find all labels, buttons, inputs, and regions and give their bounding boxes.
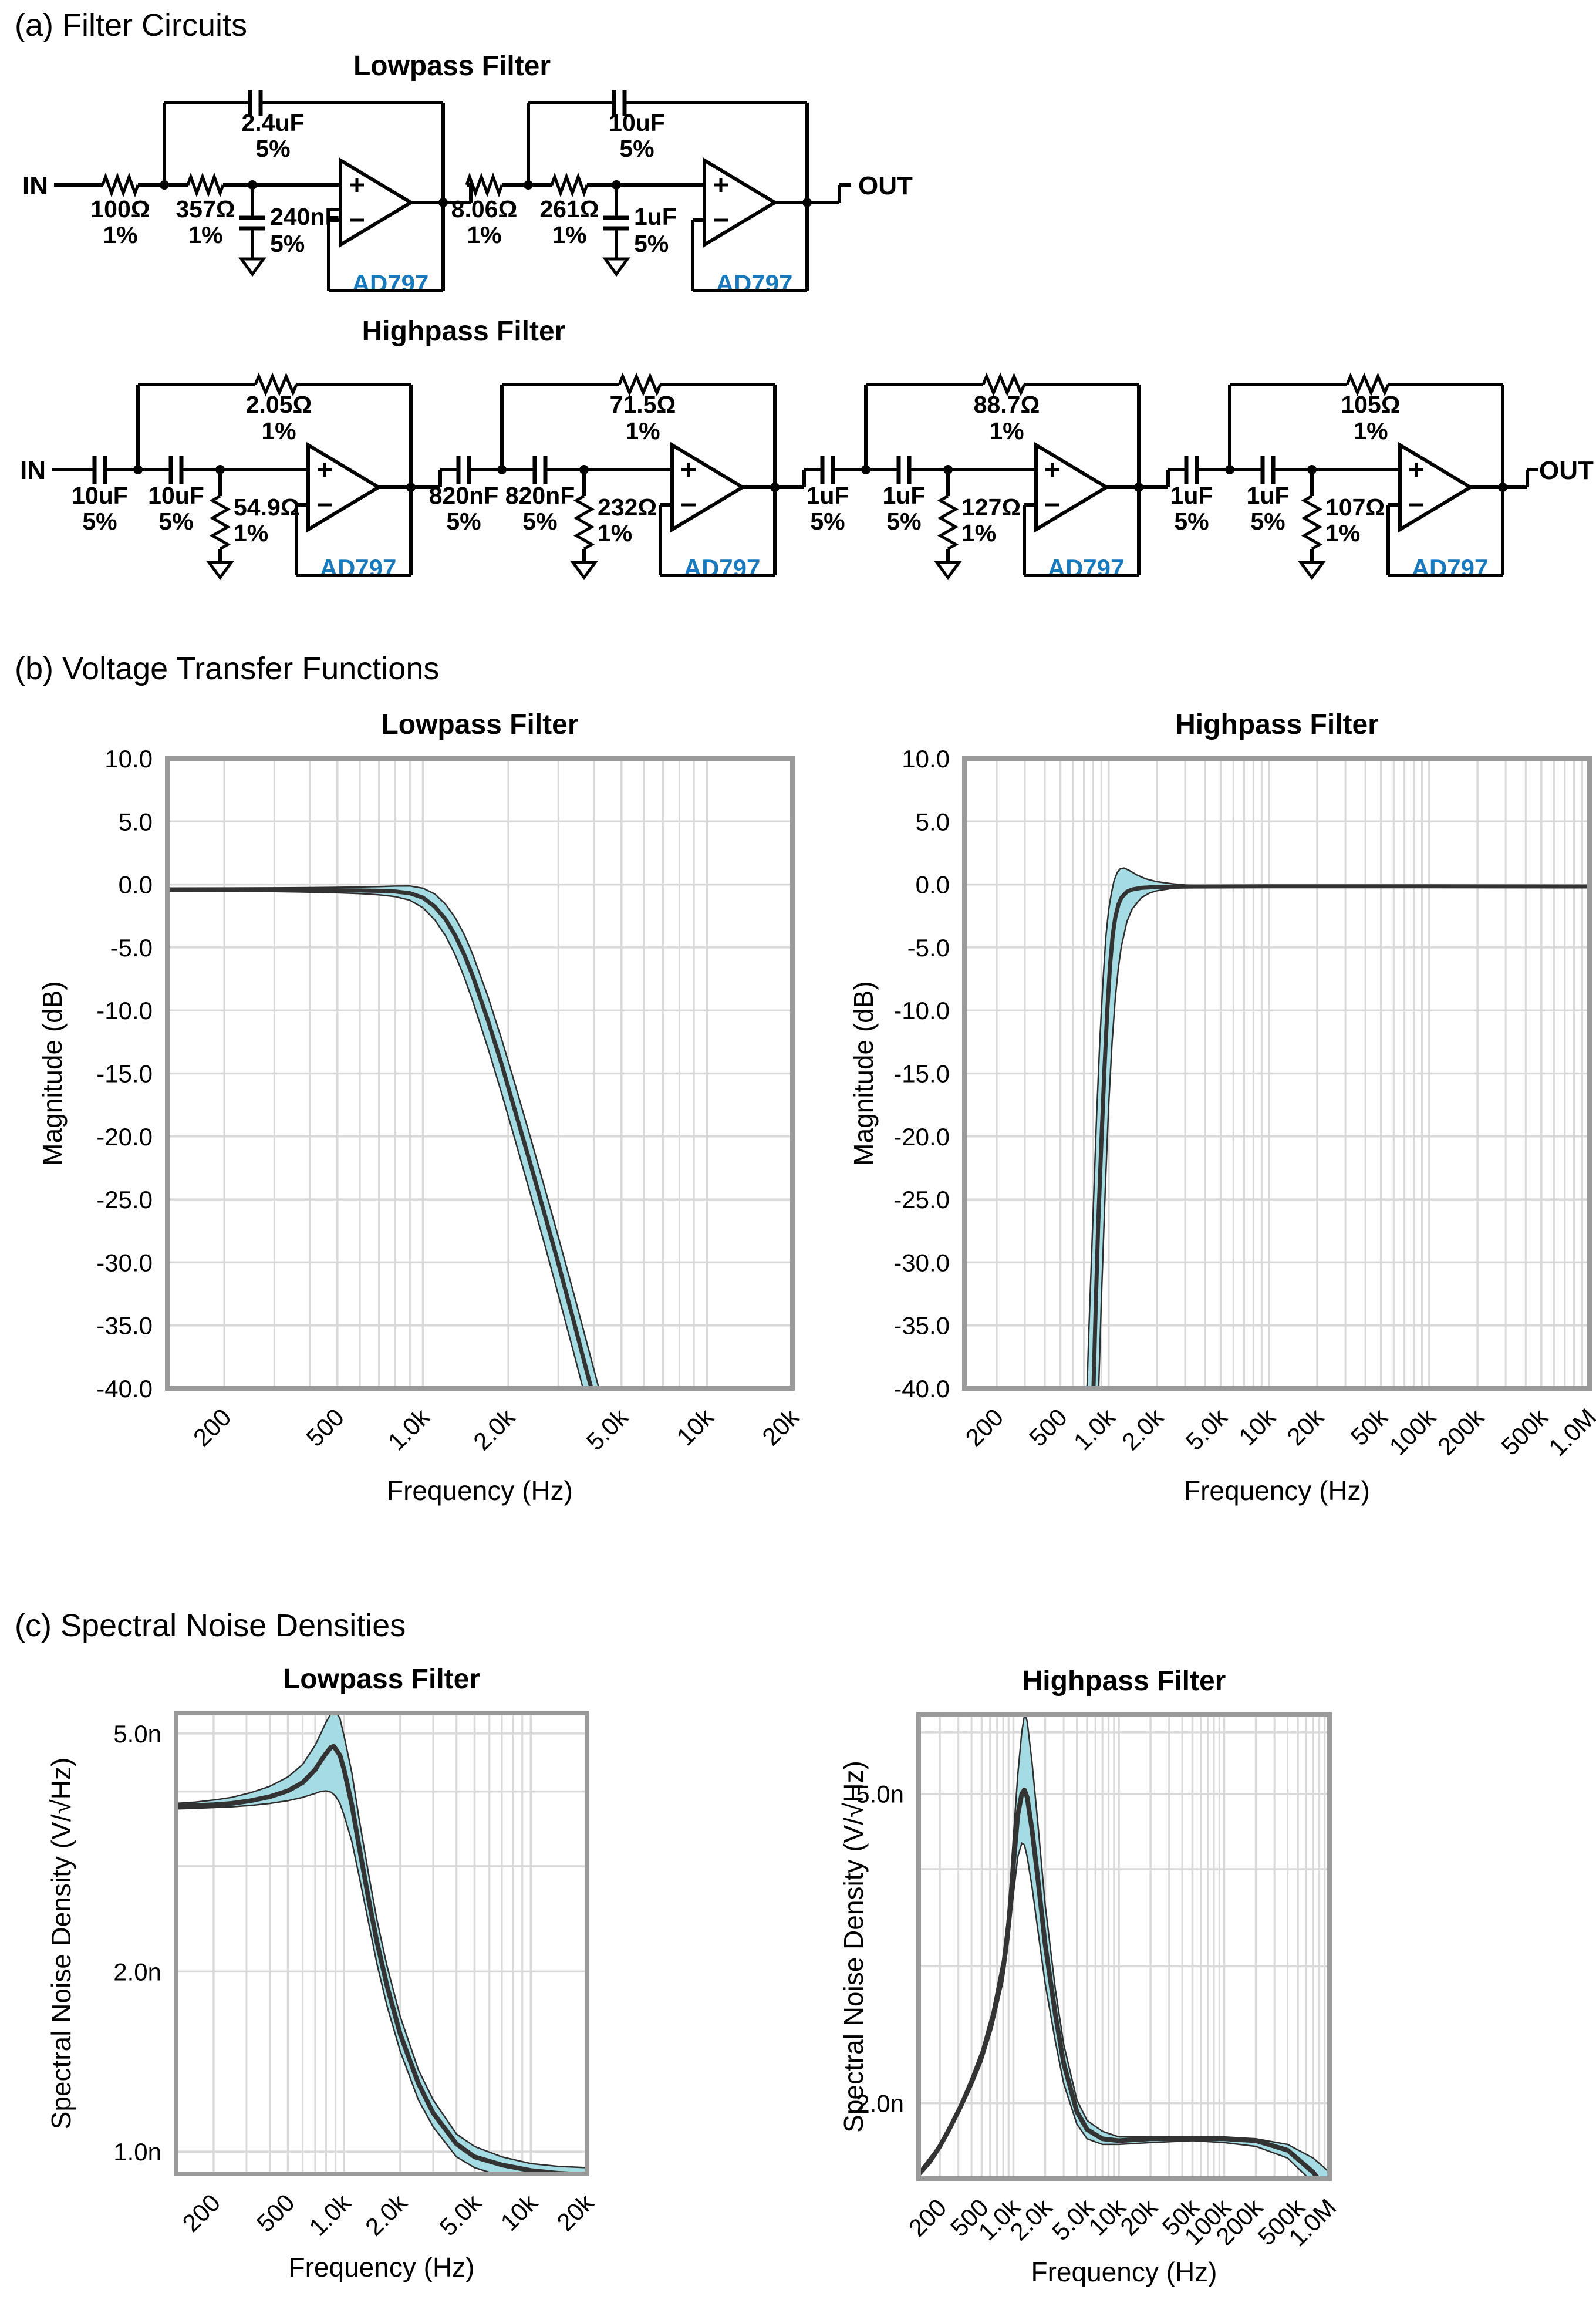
out-label: OUT <box>1539 456 1594 485</box>
component-value: 10uF <box>609 109 665 136</box>
x-tick-label: 1.0k <box>303 2188 356 2241</box>
gridlines <box>167 758 792 1388</box>
chart-title: Highpass Filter <box>1023 1665 1226 1697</box>
opamp-label: AD797 <box>684 554 761 582</box>
y-tick-label: -30.0 <box>96 1249 153 1276</box>
ground-icon <box>573 562 595 578</box>
component-tolerance: 5% <box>270 230 305 257</box>
highpass-circuit-title: Highpass Filter <box>362 316 566 347</box>
component-tolerance: 1% <box>989 417 1024 444</box>
component-value: 54.9Ω <box>234 494 300 521</box>
component-tolerance: 1% <box>261 417 296 444</box>
lowpass-stage: AD7978.06Ω1%261Ω1%1uF5%10uF5% <box>451 90 828 297</box>
ground-icon <box>209 562 231 578</box>
opamp-label: AD797 <box>1048 554 1125 582</box>
series-area <box>919 1713 1330 2214</box>
y-tick-label: -25.0 <box>96 1186 153 1213</box>
highpass-stage: AD79710uF5%10uF5%54.9Ω1%2.05Ω1% <box>72 376 428 582</box>
component-value: 2.4uF <box>241 109 304 136</box>
section-b-header: (b) Voltage Transfer Functions <box>15 650 439 687</box>
x-axis-label: Frequency (Hz) <box>1184 1475 1370 1506</box>
x-tick-label: 500 <box>301 1403 349 1452</box>
ground-icon <box>605 259 627 274</box>
y-axis-label: Magnitude (dB) <box>848 981 879 1166</box>
component-tolerance: 5% <box>446 508 481 535</box>
y-tick-label: -10.0 <box>893 997 950 1024</box>
component-tolerance: 5% <box>1174 508 1209 535</box>
y-tick-label: -20.0 <box>96 1123 153 1151</box>
series-area <box>167 886 600 1420</box>
y-tick-label: -35.0 <box>893 1312 950 1340</box>
opamp-label: AD797 <box>352 269 429 297</box>
y-tick-label: 0.0 <box>119 871 153 899</box>
out-label: OUT <box>858 171 913 200</box>
highpass-stage: AD7971uF5%1uF5%107Ω1%105Ω1% <box>1170 376 1520 582</box>
component-value: 10uF <box>148 482 204 509</box>
tolerance-band <box>167 886 600 1406</box>
y-tick-label: 5.0n <box>113 1720 161 1748</box>
component-tolerance: 1% <box>467 221 501 248</box>
y-tick-label: -40.0 <box>893 1375 950 1402</box>
component-tolerance: 1% <box>961 520 996 547</box>
gridlines <box>964 758 1590 1388</box>
x-tick-label: 5.0k <box>581 1402 634 1455</box>
y-axis-label: Spectral Noise Density (V/√Hz) <box>46 1758 76 2130</box>
x-tick-label: 200 <box>960 1403 1008 1452</box>
resistor-icon <box>212 496 228 549</box>
y-tick-label: -15.0 <box>893 1060 950 1088</box>
opamp-label: AD797 <box>716 269 793 297</box>
x-axis-label: Frequency (Hz) <box>1031 2257 1217 2287</box>
lowpass-circuit-title: Lowpass Filter <box>353 50 551 82</box>
nominal-curve <box>919 1790 1330 2194</box>
component-tolerance: 5% <box>634 230 669 257</box>
lp-noise-chart: 5.0n2.0n1.0n2005001.0k2.0k5.0k10k20kLowp… <box>0 1638 857 2303</box>
opamp-icon <box>672 445 743 530</box>
x-tick-label: 2.0k <box>1116 1402 1169 1455</box>
resistor-icon <box>983 376 1024 393</box>
opamp-label: AD797 <box>1412 554 1489 582</box>
chart-title: Highpass Filter <box>1175 709 1379 740</box>
x-axis-label: Frequency (Hz) <box>289 2252 475 2282</box>
gridlines <box>919 1715 1330 2179</box>
resistor-icon <box>576 496 592 549</box>
resistor-icon <box>1304 496 1320 549</box>
opamp-icon <box>308 445 379 530</box>
y-tick-label: -5.0 <box>110 934 153 962</box>
component-value: 71.5Ω <box>610 391 676 418</box>
y-tick-label: 5.0 <box>916 808 950 835</box>
component-value: 10uF <box>72 482 128 509</box>
x-tick-label: 200 <box>177 2189 226 2237</box>
circuits-canvas: Lowpass FilterINAD797100Ω1%357Ω1%240nF5%… <box>0 0 1596 622</box>
y-tick-label: 10.0 <box>902 745 950 773</box>
y-tick-label: 0.0 <box>916 871 950 899</box>
component-value: 107Ω <box>1325 494 1385 521</box>
component-value: 127Ω <box>961 494 1021 521</box>
ground-icon <box>937 562 959 578</box>
resistor-icon <box>619 376 660 393</box>
y-tick-label: 5.0 <box>119 808 153 835</box>
x-tick-label: 5.0k <box>434 2188 487 2241</box>
y-tick-label: -10.0 <box>96 997 153 1024</box>
x-tick-label: 200 <box>188 1403 237 1452</box>
opamp-icon <box>1036 445 1106 530</box>
in-label: IN <box>22 171 48 200</box>
component-tolerance: 5% <box>886 508 921 535</box>
component-value: 105Ω <box>1341 391 1400 418</box>
y-tick-label: -20.0 <box>893 1123 950 1151</box>
x-tick-label: 100k <box>1384 1402 1442 1460</box>
component-tolerance: 1% <box>625 417 660 444</box>
y-tick-label: -30.0 <box>893 1249 950 1276</box>
x-tick-label: 2.0k <box>468 1402 521 1455</box>
y-tick-label: 1.0n <box>113 2138 161 2166</box>
x-tick-label: 10k <box>672 1402 720 1451</box>
x-tick-label: 20k <box>1115 2193 1163 2241</box>
tolerance-band <box>176 1711 587 2185</box>
opamp-icon <box>340 160 411 245</box>
x-tick-label: 1.0M <box>1543 1403 1596 1461</box>
component-value: 1uF <box>1170 482 1213 509</box>
component-value: 820nF <box>505 482 575 509</box>
component-value: 232Ω <box>598 494 657 521</box>
highpass-stage: AD7971uF5%1uF5%127Ω1%88.7Ω1% <box>807 376 1156 582</box>
highpass-stage: AD797820nF5%820nF5%232Ω1%71.5Ω1% <box>429 376 792 582</box>
y-tick-label: -25.0 <box>893 1186 950 1213</box>
y-axis-label: Spectral Noise Density (V/√Hz) <box>838 1761 869 2133</box>
x-tick-label: 1.0k <box>382 1402 435 1455</box>
chart-title: Lowpass Filter <box>283 1664 480 1695</box>
ground-icon <box>241 259 264 274</box>
resistor-icon <box>103 177 138 193</box>
x-tick-label: 5.0k <box>1180 1402 1233 1455</box>
component-tolerance: 5% <box>82 508 117 535</box>
component-tolerance: 1% <box>1353 417 1388 444</box>
component-tolerance: 5% <box>522 508 557 535</box>
x-tick-label: 10k <box>495 2188 544 2236</box>
x-tick-label: 200 <box>903 2193 952 2242</box>
component-value: 88.7Ω <box>974 391 1040 418</box>
component-value: 100Ω <box>90 195 150 222</box>
y-tick-label: 2.0n <box>113 1958 161 1985</box>
y-tick-label: -40.0 <box>96 1375 153 1402</box>
component-tolerance: 1% <box>552 221 586 248</box>
component-tolerance: 5% <box>1250 508 1285 535</box>
component-value: 357Ω <box>176 195 235 222</box>
component-value: 240nF <box>270 203 340 230</box>
x-tick-label: 10k <box>1233 1402 1281 1451</box>
nominal-curve <box>176 1746 587 2175</box>
opamp-icon <box>704 160 775 245</box>
chart-title: Lowpass Filter <box>381 709 578 740</box>
resistor-icon <box>188 177 223 193</box>
y-tick-label: 10.0 <box>104 745 153 773</box>
in-label: IN <box>20 456 46 485</box>
component-tolerance: 1% <box>1325 520 1360 547</box>
y-tick-label: -15.0 <box>96 1060 153 1088</box>
ground-icon <box>1301 562 1323 578</box>
x-tick-label: 500 <box>1024 1403 1072 1452</box>
component-value: 1uF <box>883 482 926 509</box>
component-tolerance: 1% <box>598 520 632 547</box>
component-value: 1uF <box>1247 482 1290 509</box>
component-tolerance: 5% <box>255 135 290 162</box>
component-value: 1uF <box>807 482 849 509</box>
x-tick-label: 20k <box>551 2188 599 2236</box>
x-tick-label: 200k <box>1432 1402 1490 1460</box>
resistor-icon <box>940 496 956 549</box>
y-tick-label: -5.0 <box>907 934 950 962</box>
x-tick-label: 500k <box>1496 1402 1554 1460</box>
component-value: 261Ω <box>539 195 599 222</box>
lowpass-stage: AD797100Ω1%357Ω1%240nF5%2.4uF5% <box>90 90 464 297</box>
x-tick-label: 500 <box>251 2189 300 2237</box>
component-tolerance: 5% <box>158 508 193 535</box>
y-axis-label: Magnitude (dB) <box>37 981 68 1166</box>
x-tick-label: 20k <box>1281 1402 1330 1451</box>
component-value: 820nF <box>429 482 499 509</box>
component-tolerance: 5% <box>810 508 845 535</box>
series-area <box>176 1711 587 2185</box>
opamp-label: AD797 <box>320 554 397 582</box>
component-tolerance: 5% <box>619 135 654 162</box>
component-tolerance: 1% <box>234 520 268 547</box>
resistor-icon <box>255 376 296 393</box>
hp-noise-chart: 5.0n2.0n2005001.0k2.0k5.0k10k20k50k100k2… <box>792 1638 1596 2303</box>
component-tolerance: 1% <box>103 221 137 248</box>
resistor-icon <box>1347 376 1388 393</box>
plot-border <box>919 1715 1330 2179</box>
y-tick-label: -35.0 <box>96 1312 153 1340</box>
component-value: 2.05Ω <box>246 391 312 418</box>
opamp-icon <box>1400 445 1470 530</box>
x-tick-label: 1.0k <box>1068 1402 1121 1455</box>
x-tick-label: 2.0k <box>360 2188 413 2241</box>
hp-tf-chart: 10.05.00.0-5.0-10.0-15.0-20.0-25.0-30.0-… <box>792 693 1596 1538</box>
component-tolerance: 1% <box>188 221 222 248</box>
x-axis-label: Frequency (Hz) <box>387 1475 573 1506</box>
component-value: 8.06Ω <box>451 195 518 222</box>
resistor-icon <box>552 177 587 193</box>
component-value: 1uF <box>634 203 677 230</box>
lp-tf-chart: 10.05.00.0-5.0-10.0-15.0-20.0-25.0-30.0-… <box>0 693 857 1538</box>
